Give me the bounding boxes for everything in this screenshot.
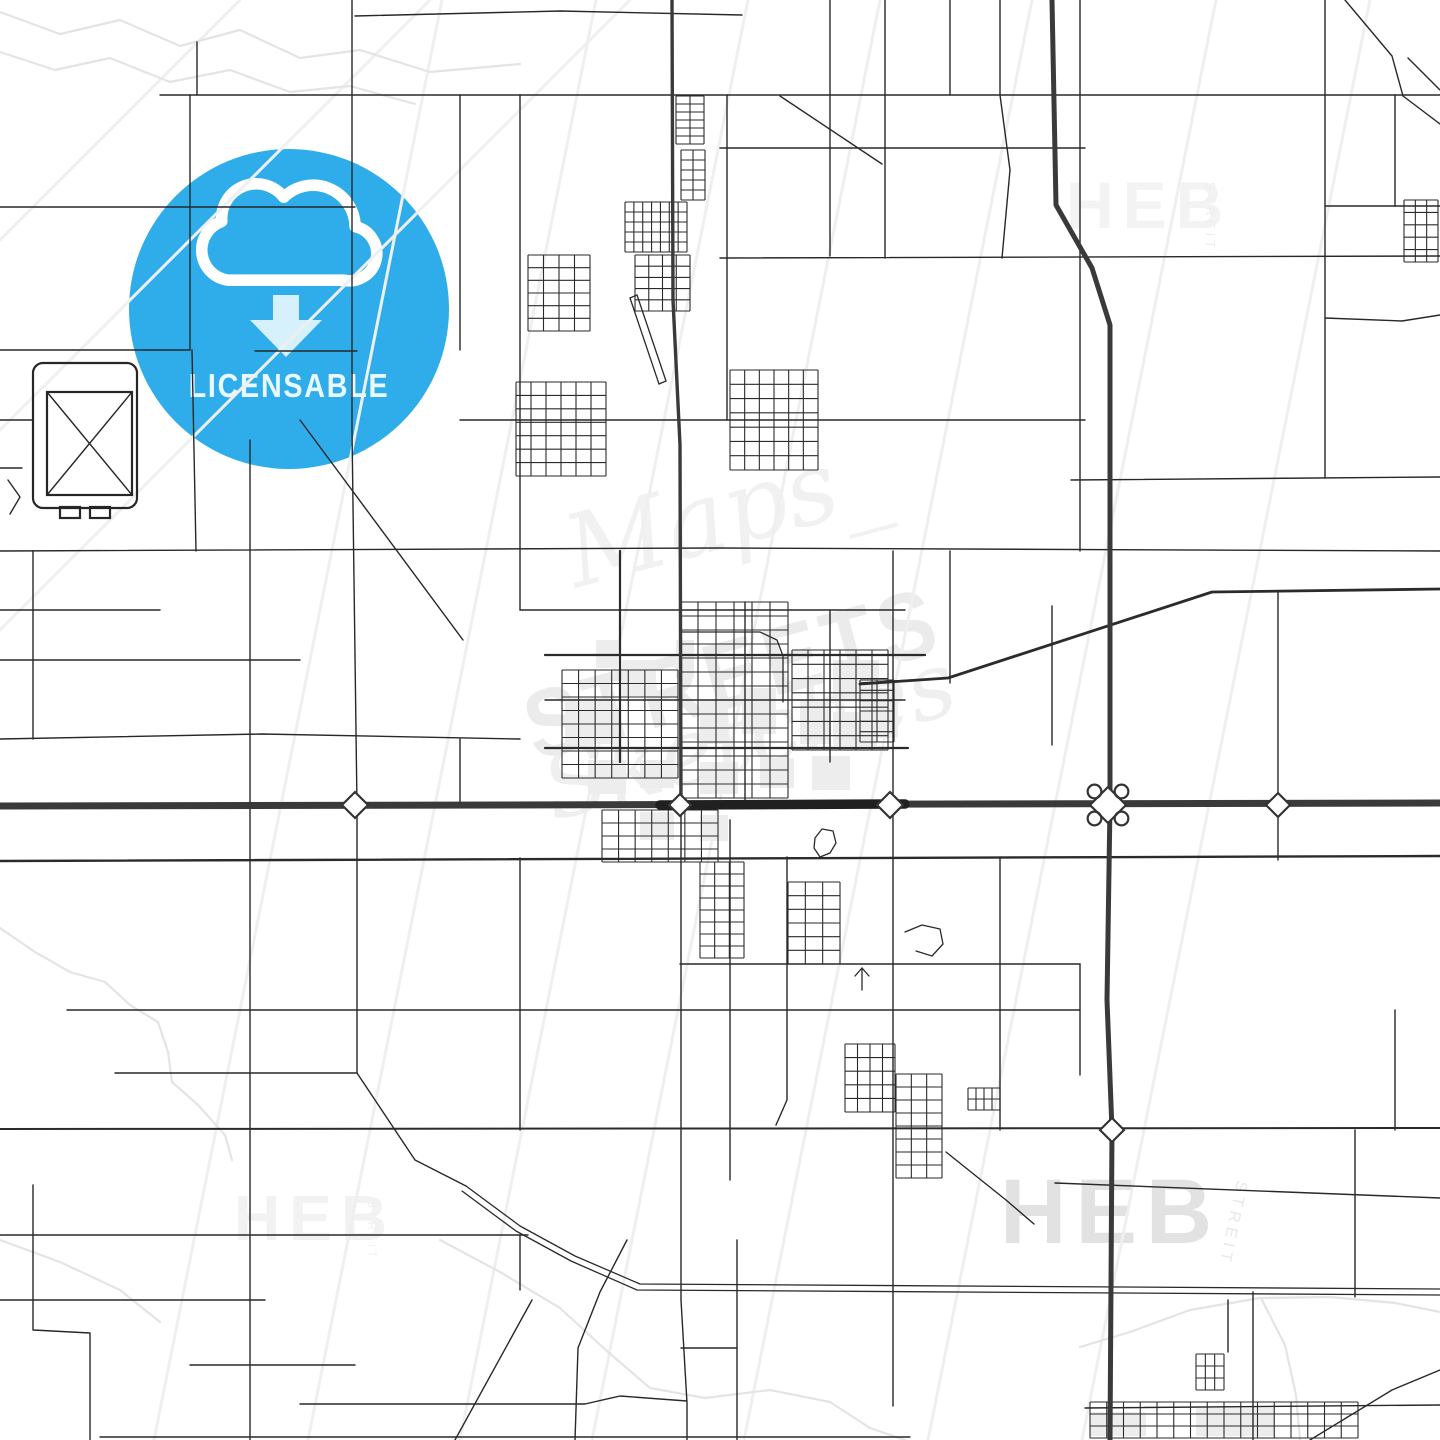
- road-minor: [8, 480, 20, 514]
- highway: [660, 804, 905, 805]
- street-cluster: [1196, 1354, 1224, 1390]
- light-guide-line: [0, 0, 430, 430]
- street-cluster: [788, 882, 840, 964]
- light-guide-line: [1082, 0, 1370, 1440]
- street-cluster: [635, 255, 690, 311]
- road-major: [0, 1128, 1440, 1129]
- street-cluster: [528, 255, 590, 331]
- road-minor: [355, 11, 742, 16]
- road-detail: [462, 1191, 1440, 1295]
- light-guide-line: [154, 0, 442, 1440]
- interchange: [1100, 1118, 1124, 1142]
- waterway: [0, 1240, 160, 1322]
- road-minor: [300, 1396, 687, 1404]
- street-cluster: [896, 1074, 942, 1178]
- road-minor: [1085, 1405, 1440, 1408]
- road-minor: [0, 734, 520, 739]
- street-cluster: [700, 862, 744, 958]
- light-guide-line: [0, 0, 240, 240]
- road-minor: [946, 1152, 1034, 1224]
- highway: [1052, 0, 1112, 1440]
- road-minor: [1345, 0, 1440, 124]
- interchange: [1088, 785, 1129, 826]
- city-block: [700, 700, 728, 744]
- street-cluster: [845, 1044, 895, 1112]
- road-minor: [1071, 477, 1440, 480]
- city-block: [812, 756, 850, 790]
- road-major: [860, 589, 1440, 684]
- road-detail: [637, 295, 666, 381]
- road-minor: [681, 806, 687, 1440]
- road-minor: [352, 0, 357, 806]
- road-detail: [905, 925, 943, 956]
- road-minor: [1408, 58, 1440, 90]
- light-guide-line: [928, 0, 1216, 1440]
- city-block: [588, 760, 626, 794]
- city-block: [700, 762, 738, 794]
- road-minor: [300, 420, 463, 640]
- street-cluster: [625, 202, 687, 252]
- road-minor: [1325, 315, 1440, 321]
- road-minor: [33, 1185, 90, 1440]
- street-cluster: [681, 150, 705, 200]
- city-block: [1090, 1412, 1146, 1436]
- road-minor: [0, 548, 1440, 551]
- facility-outline: [33, 363, 137, 508]
- street-cluster: [1404, 200, 1438, 262]
- interchange: [342, 792, 368, 818]
- facility-outline-layer: [33, 363, 137, 518]
- light-guide-line-layer: [0, 0, 1370, 1440]
- road-minor: [455, 1300, 532, 1440]
- city-block: [622, 660, 656, 696]
- street-cluster: [676, 96, 704, 144]
- road-minor: [192, 350, 196, 551]
- road-detail: [814, 829, 836, 857]
- interchange: [1266, 793, 1290, 817]
- road-minor: [780, 96, 882, 164]
- city-block: [742, 688, 776, 734]
- waterway: [0, 928, 232, 1160]
- street-cluster: [516, 382, 606, 476]
- road-minor: [1000, 0, 1010, 258]
- light-guide-line: [308, 0, 596, 1440]
- map-poster: HEB STREIT HEB STREIT HEB STREIT Maps_ S…: [0, 0, 1440, 1440]
- road-detail-layer: [462, 295, 1440, 1295]
- road-detail: [630, 295, 637, 298]
- road-major: [0, 856, 1440, 861]
- waterway: [1080, 1297, 1440, 1347]
- interchange: [877, 792, 903, 818]
- city-block: [700, 815, 728, 841]
- road-minor: [776, 857, 787, 1125]
- waterway: [0, 12, 520, 72]
- road-detail: [659, 381, 666, 384]
- street-map-canvas: [0, 0, 1440, 1440]
- road-detail: [466, 1186, 1440, 1289]
- road-minor: [575, 1240, 627, 1440]
